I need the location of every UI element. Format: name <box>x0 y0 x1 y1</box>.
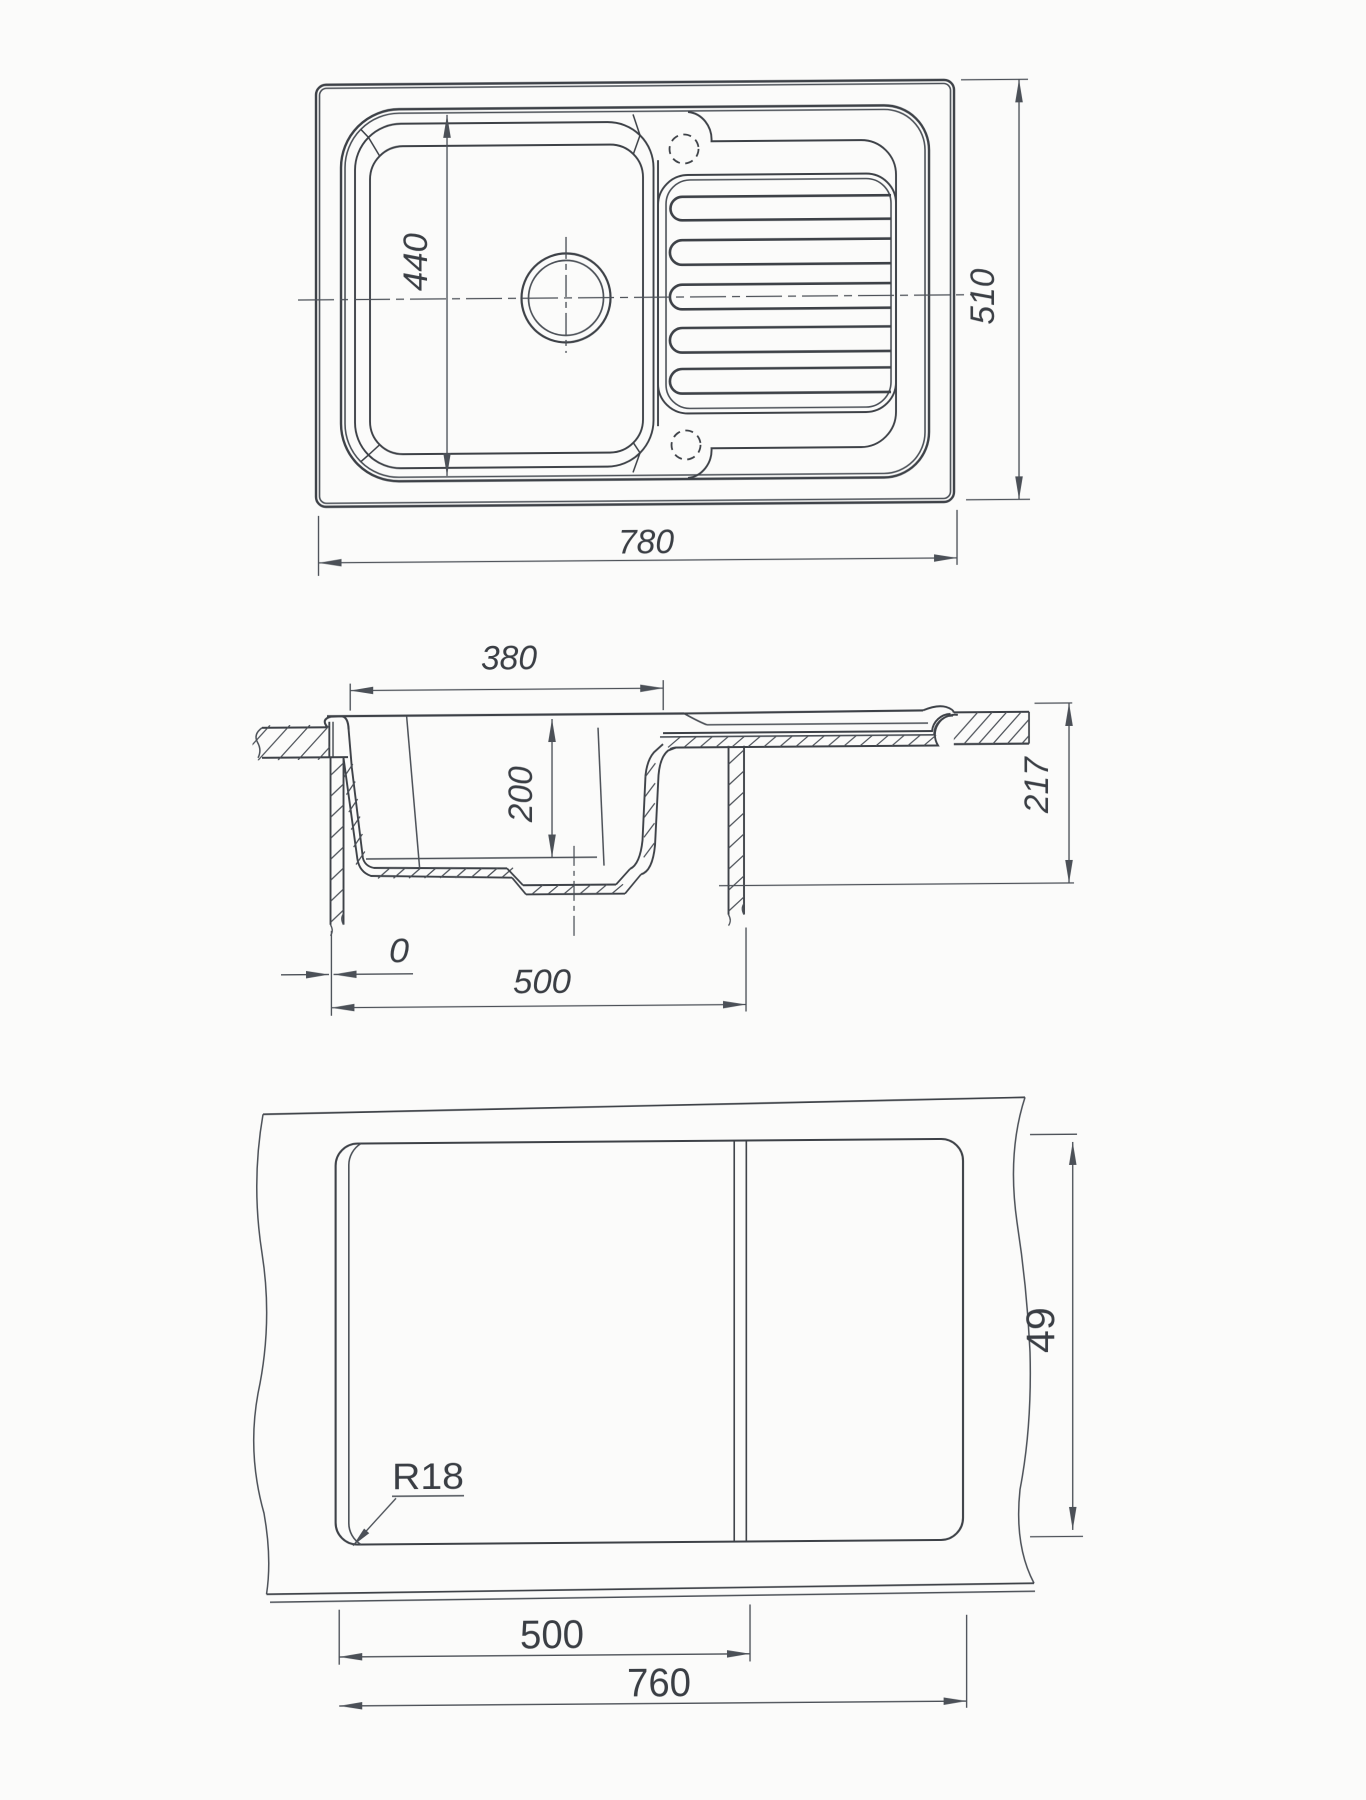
svg-text:217: 217 <box>1018 756 1056 814</box>
svg-text:500: 500 <box>513 963 571 1001</box>
svg-text:780: 780 <box>618 523 674 561</box>
svg-text:760: 760 <box>627 1661 691 1706</box>
svg-text:49: 49 <box>1019 1307 1063 1353</box>
svg-text:510: 510 <box>964 268 1002 324</box>
svg-text:0: 0 <box>389 932 409 970</box>
svg-text:200: 200 <box>502 766 540 823</box>
svg-text:R18: R18 <box>392 1456 464 1498</box>
svg-text:380: 380 <box>481 639 537 677</box>
svg-text:440: 440 <box>397 233 435 291</box>
svg-text:500: 500 <box>520 1613 584 1658</box>
